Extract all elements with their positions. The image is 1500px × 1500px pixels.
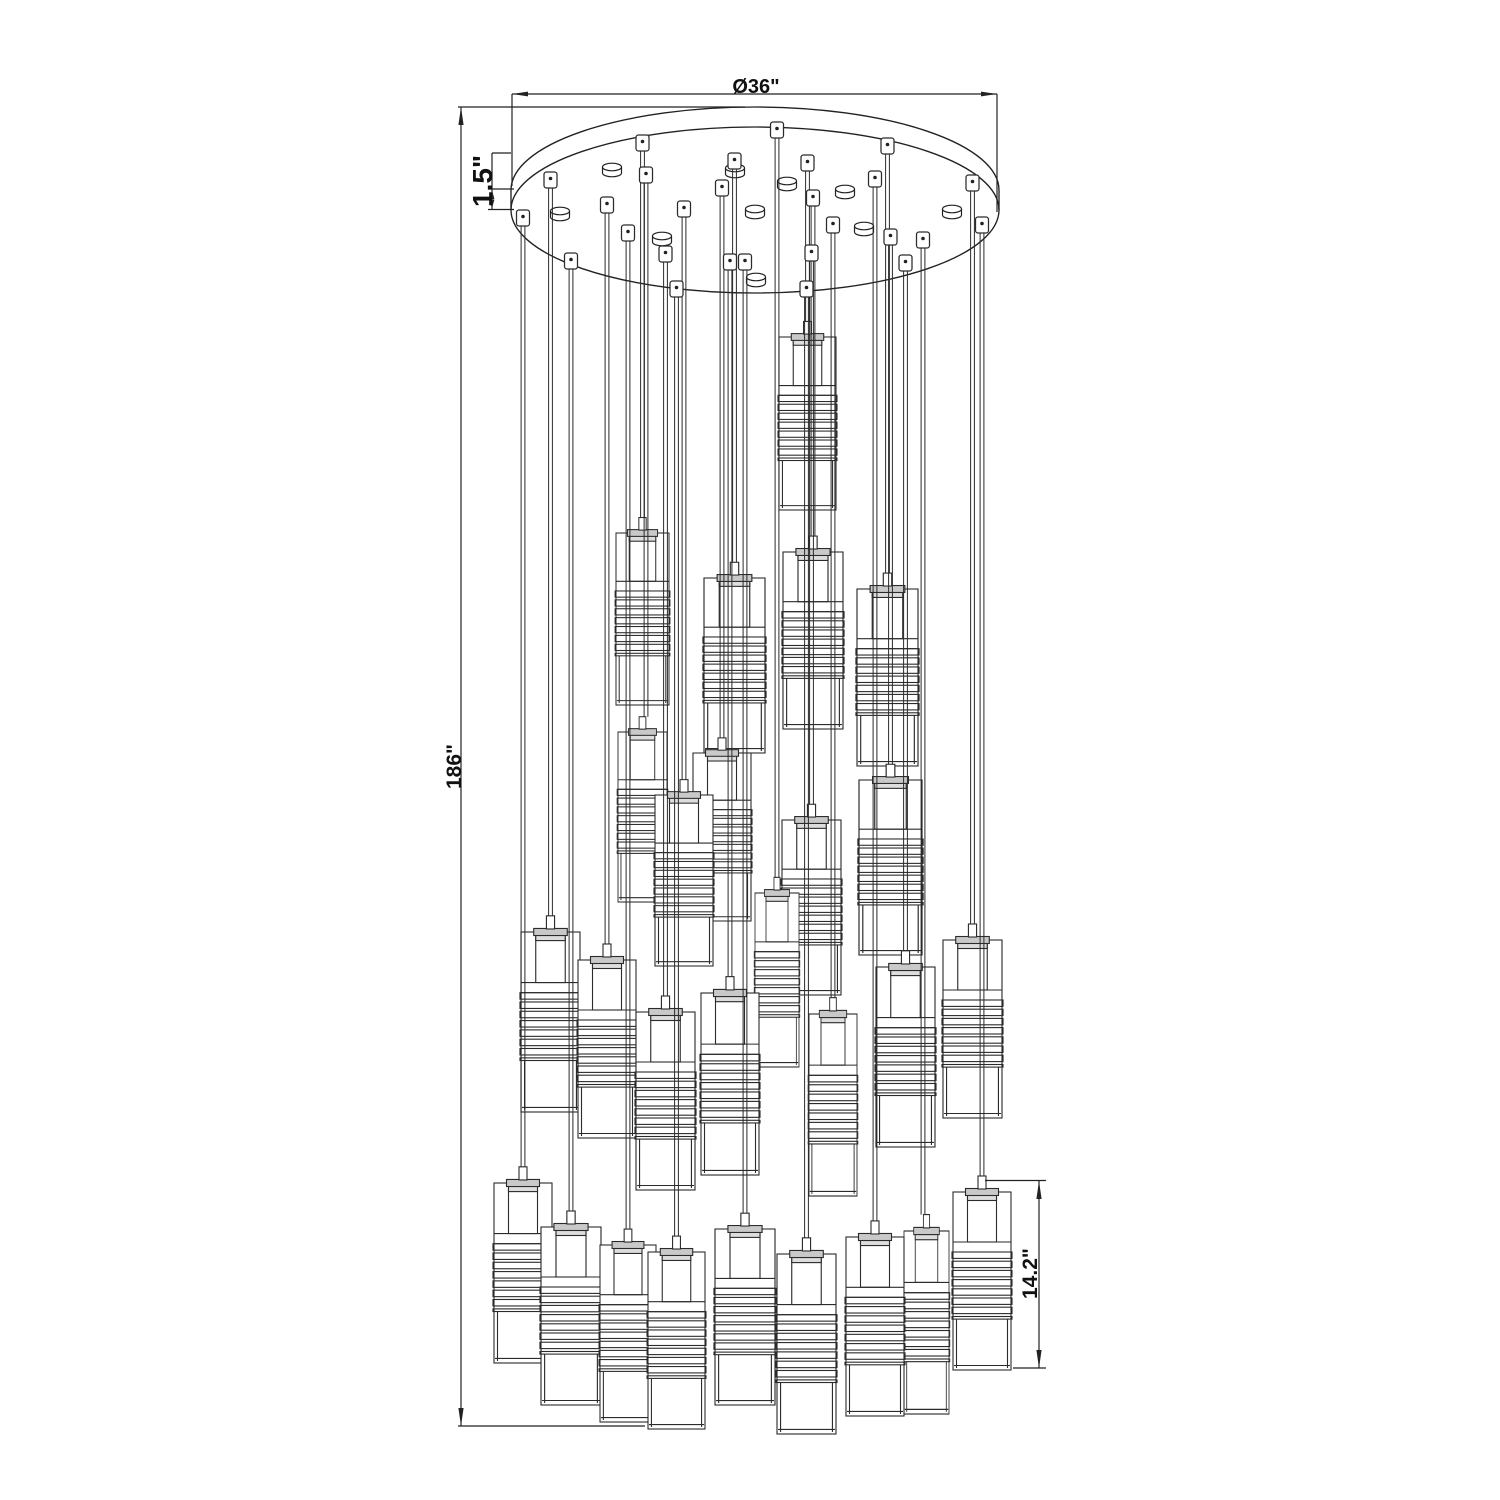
svg-text:186": 186" [443, 744, 466, 789]
svg-text:Ø36": Ø36" [732, 76, 779, 98]
svg-text:1.5": 1.5" [467, 155, 498, 207]
svg-text:14.2": 14.2" [1019, 1248, 1042, 1299]
